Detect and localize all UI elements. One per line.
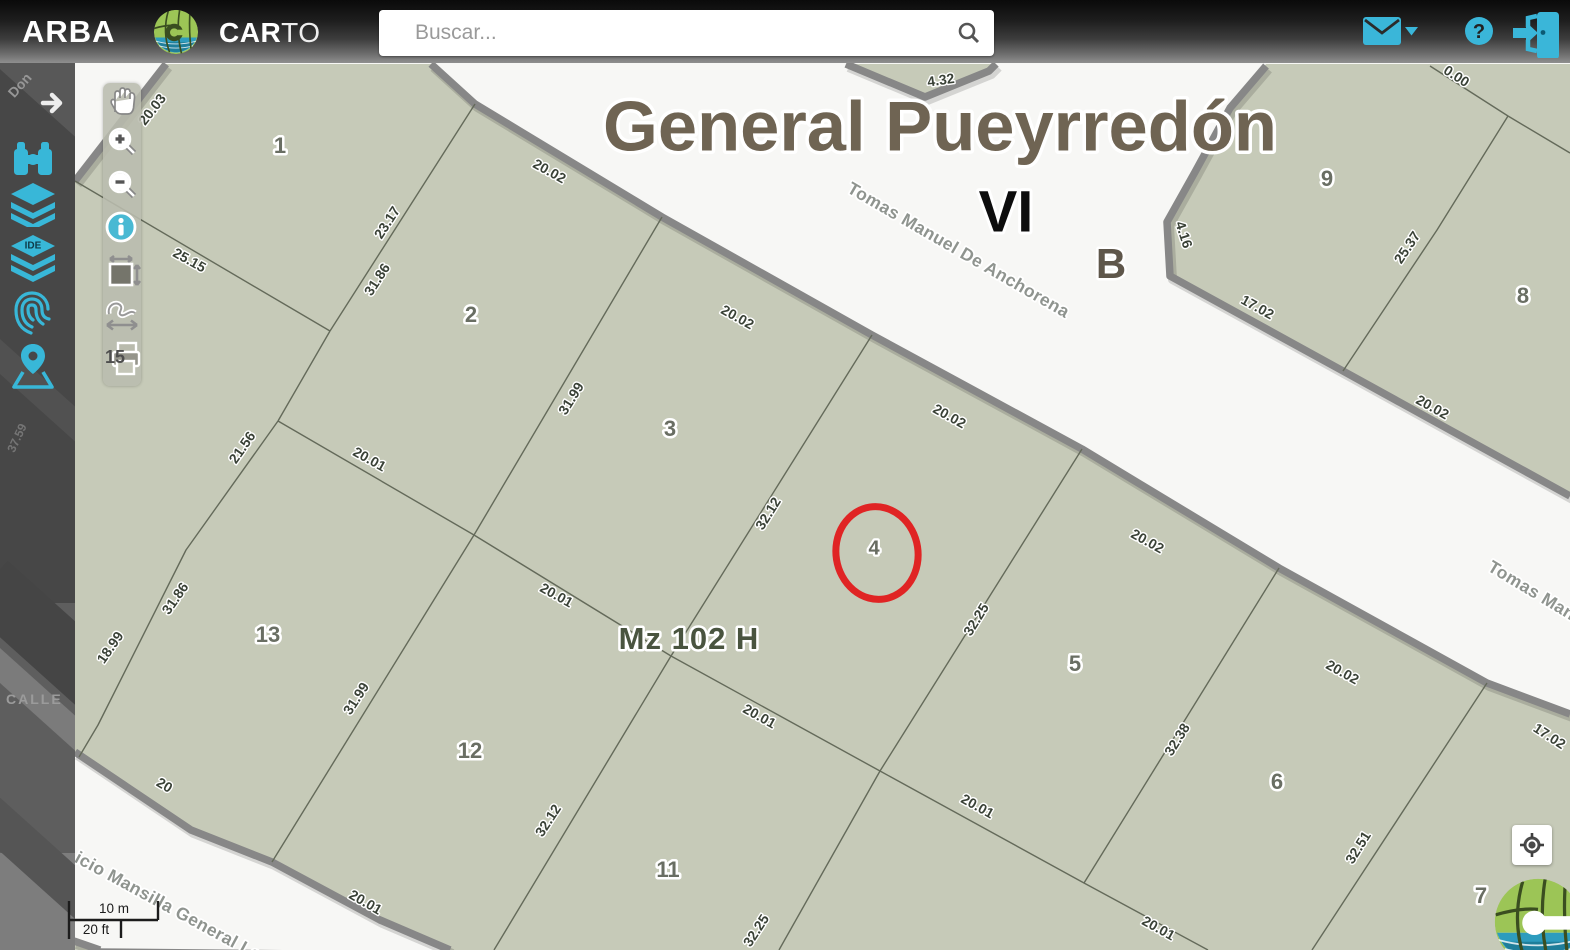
svg-text:7: 7 [1475,883,1487,908]
svg-text:2: 2 [465,302,477,327]
svg-text:9: 9 [1321,166,1333,191]
svg-text:11: 11 [656,857,679,882]
svg-text:5: 5 [1069,651,1081,676]
svg-text:1: 1 [274,133,286,158]
svg-text:B: B [1096,240,1126,287]
svg-text:6: 6 [1271,769,1283,794]
svg-text:10 m: 10 m [99,901,129,916]
svg-text:12: 12 [458,738,482,763]
svg-text:15: 15 [105,347,125,367]
svg-text:8: 8 [1517,283,1529,308]
svg-text:General Pueyrredón: General Pueyrredón [603,87,1277,166]
svg-text:13: 13 [256,622,280,647]
svg-text:3: 3 [664,416,676,441]
svg-text:IDE: IDE [25,241,42,252]
svg-text:Mz 102 H: Mz 102 H [619,621,760,656]
svg-text:20 ft: 20 ft [83,922,110,937]
svg-text:?: ? [1473,21,1485,43]
svg-text:4: 4 [868,537,880,559]
svg-text:VI: VI [979,179,1034,244]
